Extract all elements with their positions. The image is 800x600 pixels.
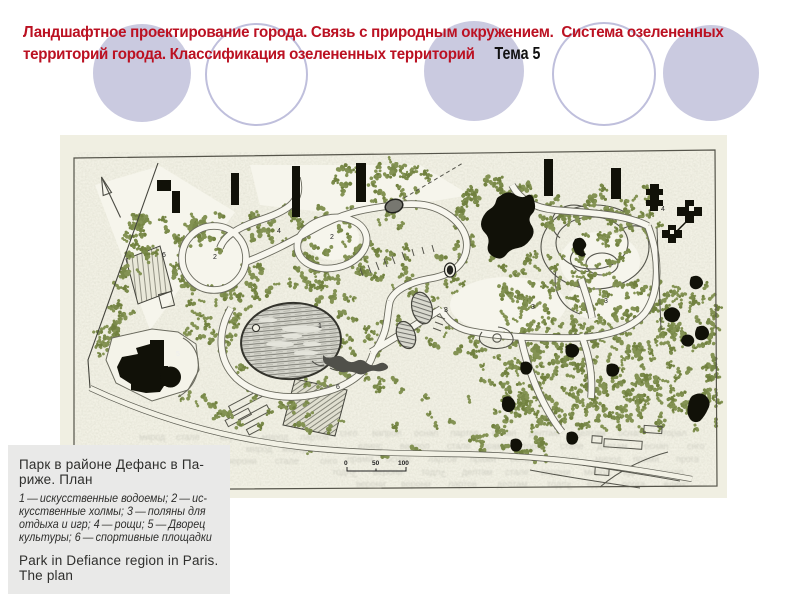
svg-text:100: 100 — [398, 460, 409, 467]
svg-text:1: 1 — [318, 323, 322, 330]
svg-text:0: 0 — [344, 460, 348, 467]
svg-text:стале: стале — [275, 456, 299, 466]
svg-text:6: 6 — [336, 384, 340, 391]
svg-text:делтам: делтам — [462, 467, 492, 477]
svg-text:тодлج: тодлج — [421, 467, 446, 478]
svg-text:тодлج: тодлج — [547, 479, 572, 490]
svg-text:стале: стале — [505, 467, 529, 477]
svg-text:прога: прога — [676, 454, 699, 464]
svg-text:оснап: оснап — [618, 428, 642, 438]
svg-text:стале: стале — [447, 441, 471, 451]
svg-text:верони: верони — [373, 467, 403, 477]
svg-text:4: 4 — [277, 228, 281, 235]
svg-text:вапрол: вапрол — [372, 428, 402, 438]
svg-text:4: 4 — [661, 206, 665, 213]
svg-text:прами: прами — [347, 454, 373, 464]
svg-text:2: 2 — [330, 234, 334, 241]
svg-text:снго: снго — [320, 456, 338, 466]
svg-text:мирод: мирод — [139, 432, 166, 442]
svg-text:снго: снго — [340, 428, 358, 438]
svg-text:6: 6 — [162, 252, 166, 259]
svg-text:3: 3 — [531, 304, 535, 311]
svg-text:делтам: делтам — [529, 428, 559, 438]
svg-text:2: 2 — [213, 254, 217, 261]
svg-text:оснап: оснап — [644, 441, 668, 451]
svg-text:верони: верони — [541, 467, 571, 477]
svg-text:верони: верони — [227, 456, 257, 466]
svg-text:тодлج: тодлج — [332, 467, 357, 478]
svg-text:50: 50 — [372, 460, 380, 467]
svg-text:снго: снго — [687, 441, 705, 451]
svg-text:стале: стале — [176, 432, 200, 442]
svg-text:3: 3 — [604, 298, 608, 305]
svg-text:оснап: оснап — [414, 428, 438, 438]
svg-text:5: 5 — [176, 351, 180, 358]
svg-text:3: 3 — [444, 307, 448, 314]
